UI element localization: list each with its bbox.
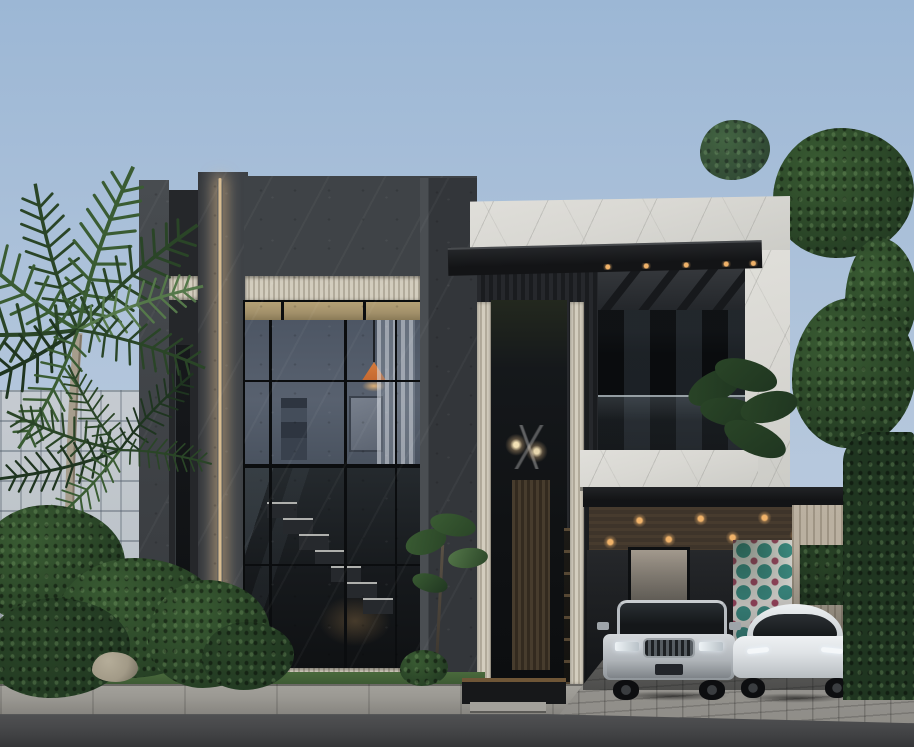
fluted-pilaster-left [477,302,491,685]
canopy-soffit [598,268,745,312]
ev-body [733,636,857,678]
suv-headlight [615,642,639,651]
hedge [843,432,914,700]
suv-wheel [613,680,639,700]
suv-grille [645,640,693,656]
entrance-bench [462,678,566,704]
architectural-render [0,0,914,747]
ev-wheel [741,678,765,698]
suv-wheel [699,680,725,700]
suv-mirror [597,622,609,630]
fluted-pilaster-right [570,302,584,685]
entrance-step [470,702,546,711]
ev-windshield [753,614,837,638]
canopy-downlights [598,260,758,270]
ev-crossover [733,604,857,700]
balcony-slab [580,450,758,487]
palm-crown-upper [0,157,221,458]
rock [92,652,138,682]
tree-canopy [792,298,914,448]
suv [603,596,735,700]
wood-slat-door[interactable] [512,480,550,670]
carport-fascia [583,487,873,507]
suv-headlight [699,642,723,651]
chandelier [497,425,561,469]
suv-license-plate [655,664,683,675]
canopy-beam [598,268,646,312]
canopy-beam [634,268,685,312]
